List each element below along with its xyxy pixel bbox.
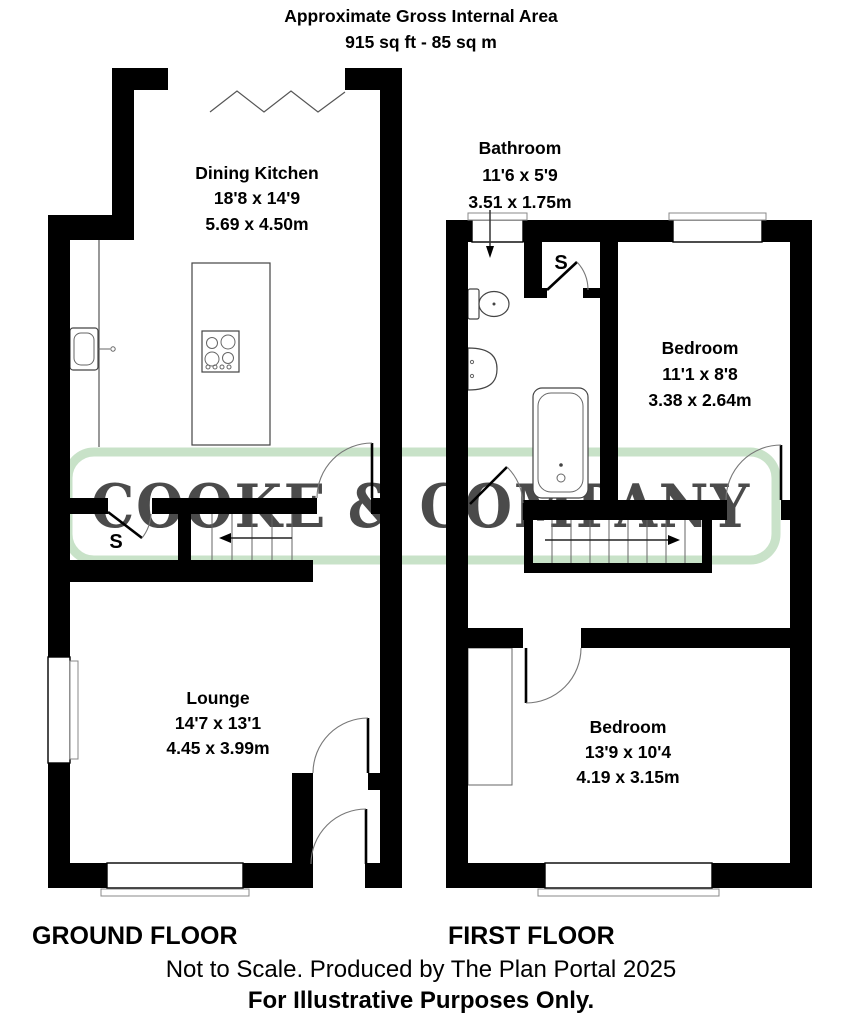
gf-window-lounge-left — [48, 657, 78, 763]
room-name: Bathroom — [479, 138, 562, 158]
room-dims-metric: 5.69 x 4.50m — [205, 214, 308, 234]
ground-floor-caption: GROUND FLOOR — [32, 922, 238, 950]
toilet — [468, 289, 509, 319]
room-dims-imperial: 11'1 x 8'8 — [662, 364, 738, 384]
ff-window-bedroom1 — [669, 213, 766, 242]
ff-storage-label: S — [554, 252, 567, 274]
room-label-bedroom1: Bedroom 11'1 x 8'8 3.38 x 2.64m — [648, 338, 751, 410]
ff-window-bedroom2 — [538, 863, 719, 896]
floorplan-page: COOKE & COMPANY Approximate Gross Intern… — [0, 0, 843, 1024]
room-dims-metric: 4.19 x 3.15m — [576, 767, 679, 787]
room-label-bedroom2: Bedroom 13'9 x 10'4 4.19 x 3.15m — [576, 717, 679, 787]
room-dims-metric: 3.51 x 1.75m — [468, 192, 571, 212]
kitchen-island — [192, 263, 270, 445]
room-dims-imperial: 18'8 x 14'9 — [214, 188, 300, 208]
first-floor-caption: FIRST FLOOR — [448, 922, 615, 950]
room-dims-imperial: 13'9 x 10'4 — [585, 742, 671, 762]
gf-storage-label: S — [109, 531, 122, 553]
room-dims-imperial: 11'6 x 5'9 — [482, 165, 558, 185]
footer-illustrative: For Illustrative Purposes Only. — [248, 987, 594, 1014]
room-dims-imperial: 14'7 x 13'1 — [175, 713, 261, 733]
ff-window-bathroom — [468, 213, 527, 242]
footer-disclaimer: Not to Scale. Produced by The Plan Porta… — [166, 956, 677, 983]
hob — [202, 331, 239, 372]
room-name: Bedroom — [662, 338, 739, 358]
room-label-bathroom: Bathroom 11'6 x 5'9 3.51 x 1.75m — [468, 138, 571, 212]
page-title-line2: 915 sq ft - 85 sq m — [345, 32, 497, 52]
room-name: Bedroom — [590, 717, 667, 737]
room-name: Dining Kitchen — [195, 163, 318, 183]
bathtub — [533, 388, 588, 498]
gf-window-lounge-bottom — [101, 863, 249, 896]
room-dims-metric: 4.45 x 3.99m — [166, 738, 269, 758]
room-dims-metric: 3.38 x 2.64m — [648, 390, 751, 410]
page-title-line1: Approximate Gross Internal Area — [284, 6, 558, 26]
floorplan-canvas: COOKE & COMPANY Approximate Gross Intern… — [0, 0, 843, 1024]
room-name: Lounge — [186, 688, 249, 708]
